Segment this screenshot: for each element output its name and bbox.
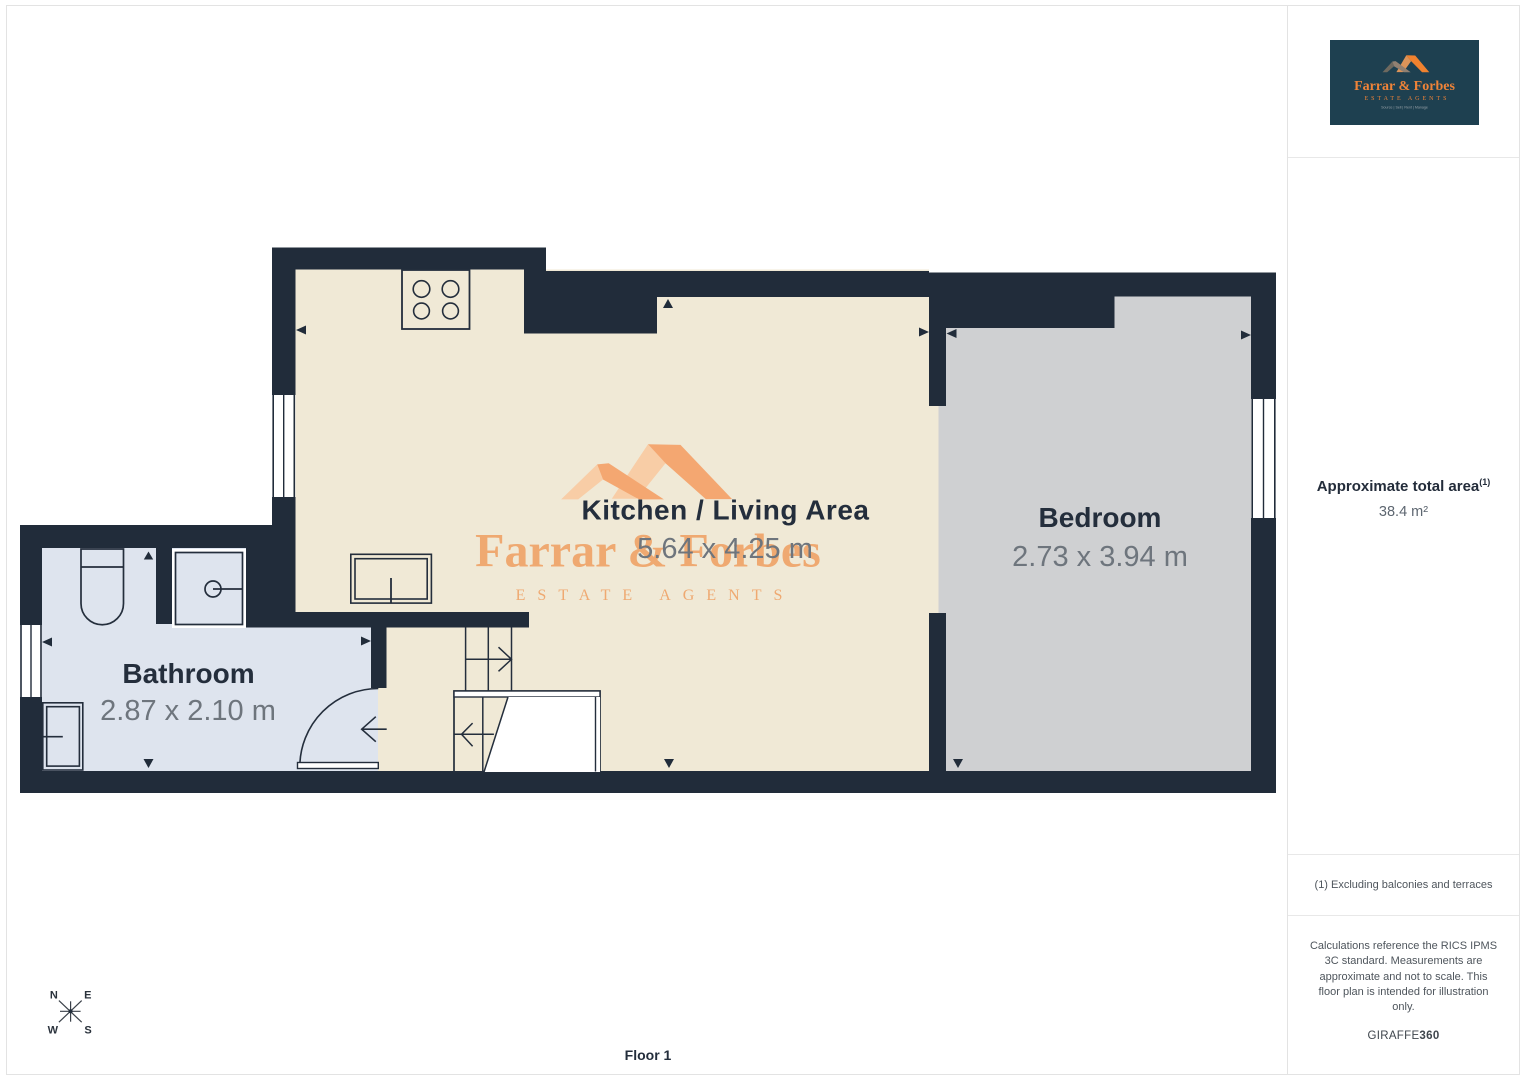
svg-text:E: E: [84, 990, 91, 1002]
svg-text:S: S: [84, 1025, 91, 1037]
svg-text:Farrar & Forbes: Farrar & Forbes: [1354, 79, 1455, 94]
svg-text:2.73 x 3.94 m: 2.73 x 3.94 m: [1012, 541, 1188, 573]
svg-text:W: W: [48, 1025, 59, 1037]
svg-text:N: N: [50, 990, 58, 1002]
svg-text:Bedroom: Bedroom: [1039, 502, 1162, 533]
svg-text:Floor 1: Floor 1: [625, 1047, 672, 1063]
svg-text:ESTATE AGENTS: ESTATE AGENTS: [1364, 96, 1449, 102]
svg-text:ESTATE AGENTS: ESTATE AGENTS: [516, 587, 795, 604]
svg-text:2.87 x 2.10 m: 2.87 x 2.10 m: [100, 695, 276, 727]
svg-text:Bathroom: Bathroom: [122, 658, 254, 689]
svg-text:Source | Sell | Rent | Manage: Source | Sell | Rent | Manage: [1381, 106, 1428, 110]
svg-text:Kitchen / Living Area: Kitchen / Living Area: [582, 495, 870, 526]
svg-text:5.64 x 4.25 m: 5.64 x 4.25 m: [637, 533, 813, 565]
